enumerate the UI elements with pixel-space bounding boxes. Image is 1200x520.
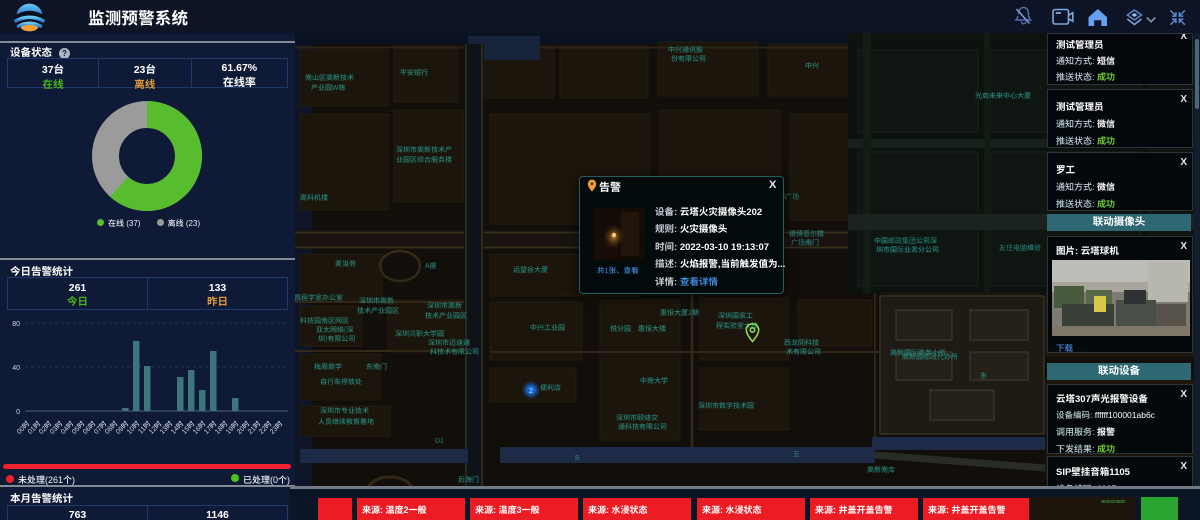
svg-text:德博意尔楼: 德博意尔楼 [789,229,824,238]
svg-text:圳市国际业务分公司: 圳市国际业务分公司 [876,245,939,254]
svg-text:B: B [575,455,580,462]
svg-text:D1: D1 [435,438,444,445]
svg-text:2: 2 [529,388,533,395]
svg-text:中南大学: 中南大学 [640,377,668,385]
svg-text:惠恒大厦2期: 惠恒大厦2期 [660,309,699,317]
svg-text:业园区综合服务楼: 业园区综合服务楼 [396,156,452,164]
svg-text:深圳市颐迪交: 深圳市颐迪交 [616,414,658,422]
svg-text:西龙同科技: 西龙同科技 [784,339,819,347]
svg-text:深圳湾职大学园: 深圳湾职大学园 [395,329,444,338]
svg-text:深圳市高新: 深圳市高新 [359,297,394,305]
svg-text:便利店: 便利店 [540,384,561,392]
svg-text:中兴: 中兴 [805,62,819,70]
svg-text:通科技有限公司: 通科技有限公司 [618,423,667,431]
svg-text:深圳市高新技术产: 深圳市高新技术产 [396,146,452,154]
svg-text:亚太网络(深: 亚太网络(深 [316,326,353,334]
svg-text:南山区高新技术: 南山区高新技术 [305,74,354,82]
svg-text:人员继续教育基地: 人员继续教育基地 [318,418,374,426]
svg-text:友住电脑维修: 友住电脑维修 [999,243,1041,252]
svg-text:深圳市数字技术园: 深圳市数字技术园 [698,402,754,410]
svg-text:深圳市专业技术: 深圳市专业技术 [320,407,369,415]
svg-text:科技术有限公司: 科技术有限公司 [430,348,479,356]
svg-text:远望谷大厦: 远望谷大厦 [513,266,548,274]
svg-text:A座: A座 [425,262,437,270]
svg-text:技术产业园区: 技术产业园区 [425,312,467,320]
svg-text:术有限公司: 术有限公司 [786,348,821,356]
svg-text:平安银行: 平安银行 [400,69,428,77]
svg-text:广场南门: 广场南门 [791,238,819,247]
svg-text:中兴工业园: 中兴工业园 [530,324,565,332]
svg-text:中国邮政集团公司深: 中国邮政集团公司深 [874,236,937,245]
svg-text:40: 40 [12,365,20,372]
svg-text:高新南库: 高新南库 [867,465,895,474]
svg-text:梅周商学: 梅周商学 [314,363,342,371]
svg-text:光启未来中心大厦: 光启未来中心大厦 [975,92,1031,100]
svg-text:惠恒大楼: 惠恒大楼 [638,325,666,333]
svg-text:五: 五 [793,450,800,458]
svg-text:东南门: 东南门 [366,363,387,371]
svg-text:后海门: 后海门 [458,476,479,484]
svg-text:技术产业园区: 技术产业园区 [357,307,399,315]
svg-text:自行车停放处: 自行车停放处 [320,378,362,386]
svg-text:产业园W栋: 产业园W栋 [311,84,346,92]
svg-text:麦当劳: 麦当劳 [335,260,356,268]
svg-text:昌程学室办公室: 昌程学室办公室 [294,294,343,302]
svg-text:高科机楼: 高科机楼 [300,194,328,202]
svg-text:东: 东 [980,372,987,380]
svg-text:圳)有限公司: 圳)有限公司 [318,335,355,343]
svg-text:科技园南区网区: 科技园南区网区 [300,317,349,325]
svg-text:深圳国家工: 深圳国家工 [718,312,753,320]
svg-text:悦分园: 悦分园 [610,325,631,333]
svg-text:0: 0 [16,409,20,416]
svg-text:中兴通讯股: 中兴通讯股 [668,46,703,54]
svg-text:80: 80 [12,321,20,328]
svg-text:份有限公司: 份有限公司 [671,55,706,63]
svg-text:深圳市高新: 深圳市高新 [427,302,462,310]
svg-text:深圳市迈迪通: 深圳市迈迪通 [428,339,470,347]
svg-text:高新园邮政代办所: 高新园邮政代办所 [902,352,958,361]
